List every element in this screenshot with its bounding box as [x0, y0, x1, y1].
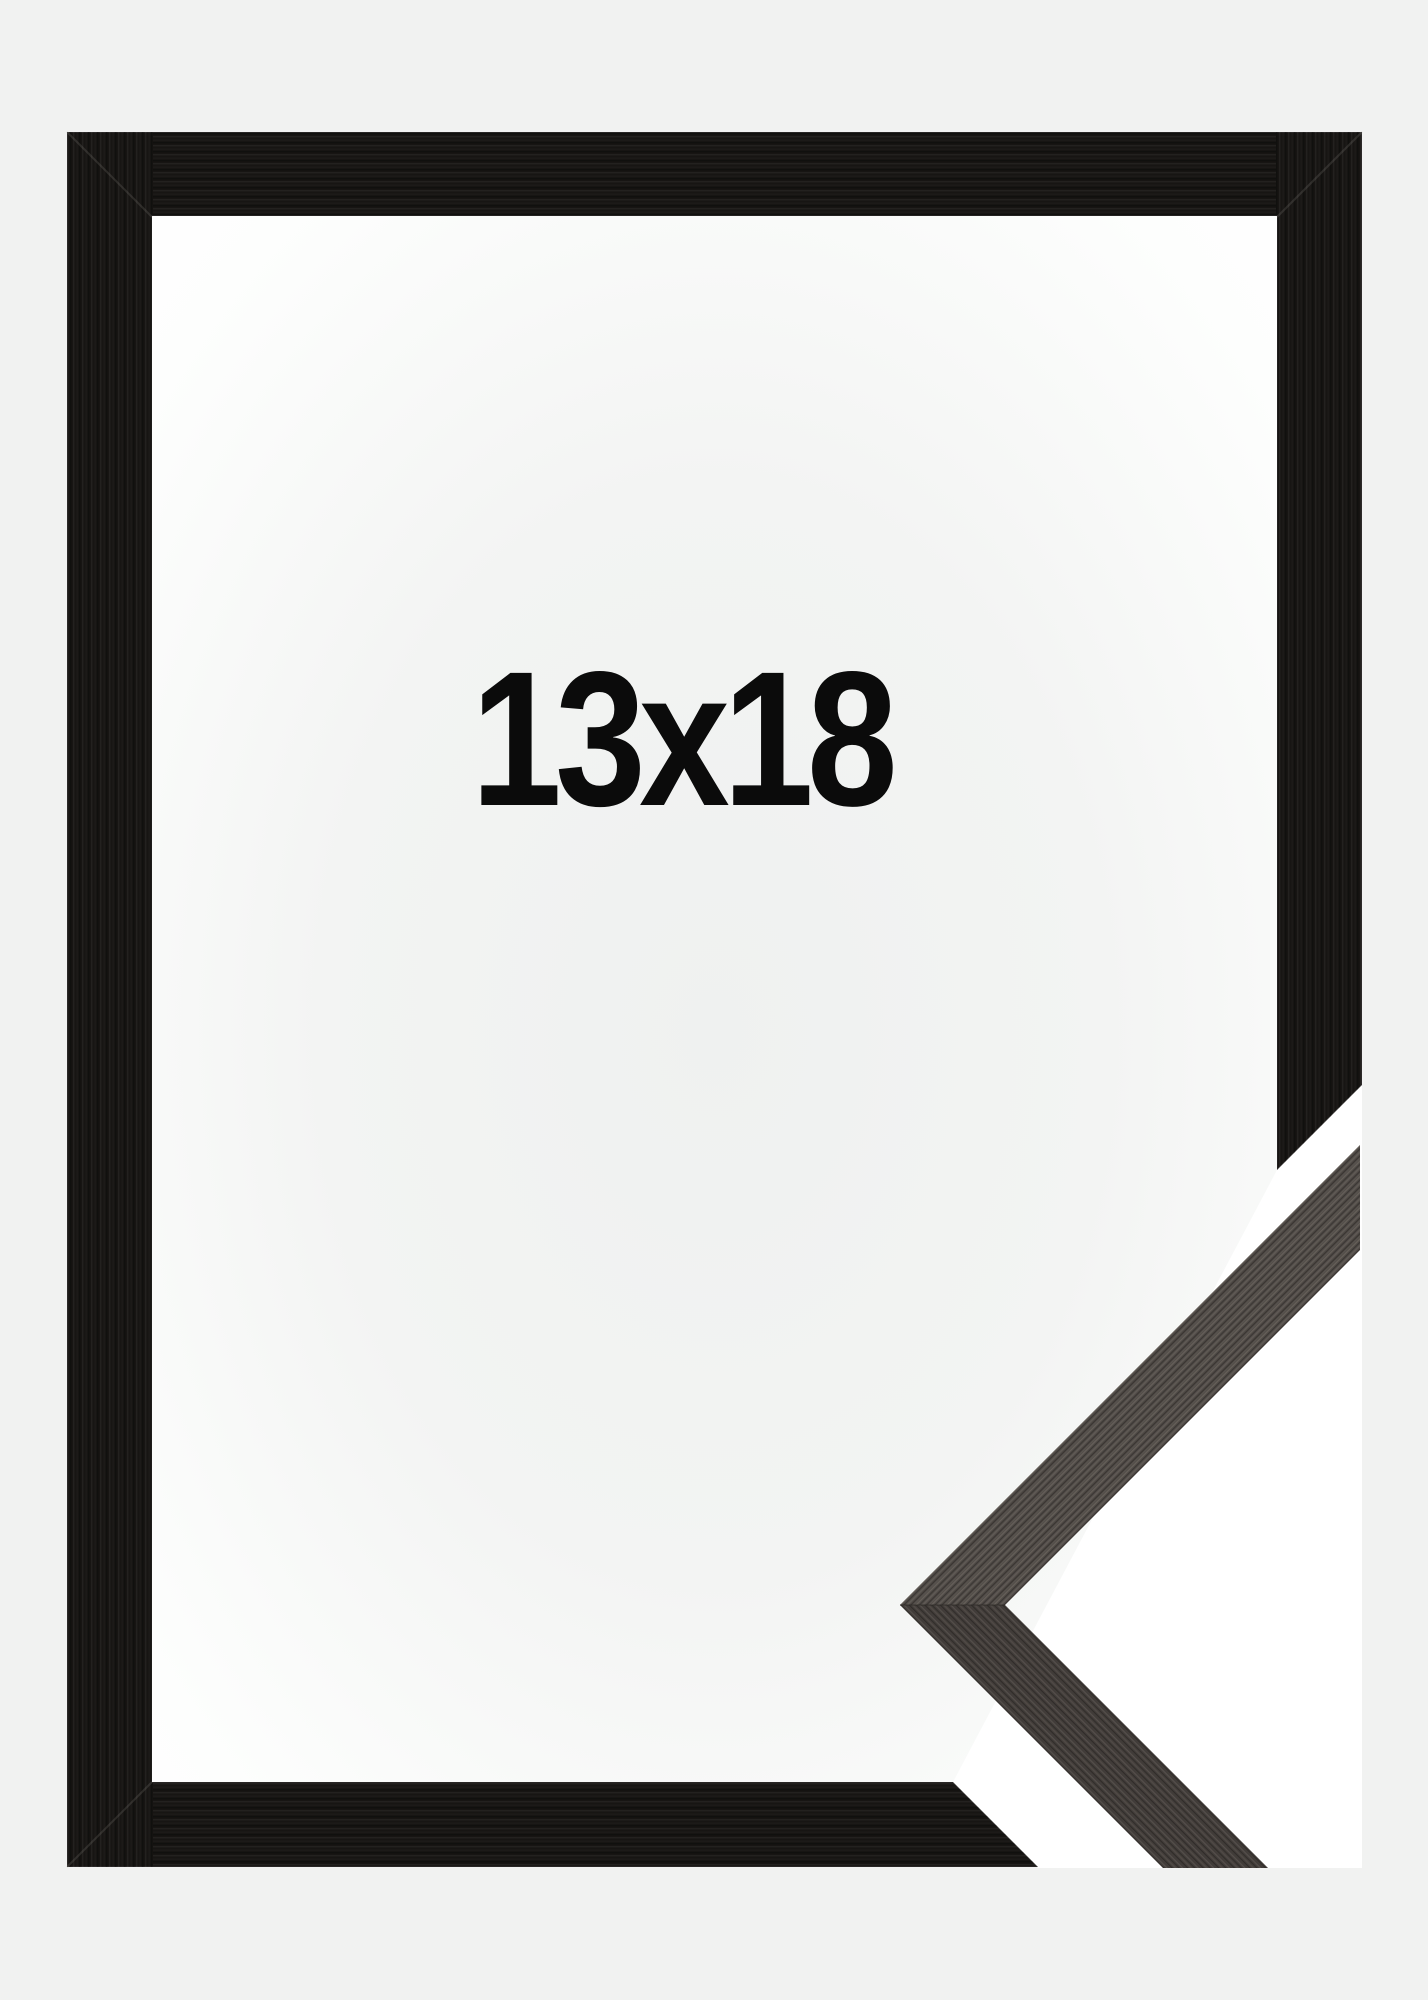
frame-product-illustration: 13x18 — [0, 0, 1428, 2000]
size-label: 13x18 — [471, 632, 893, 846]
product-photo-frame-13x18: 13x18 — [0, 0, 1428, 2000]
